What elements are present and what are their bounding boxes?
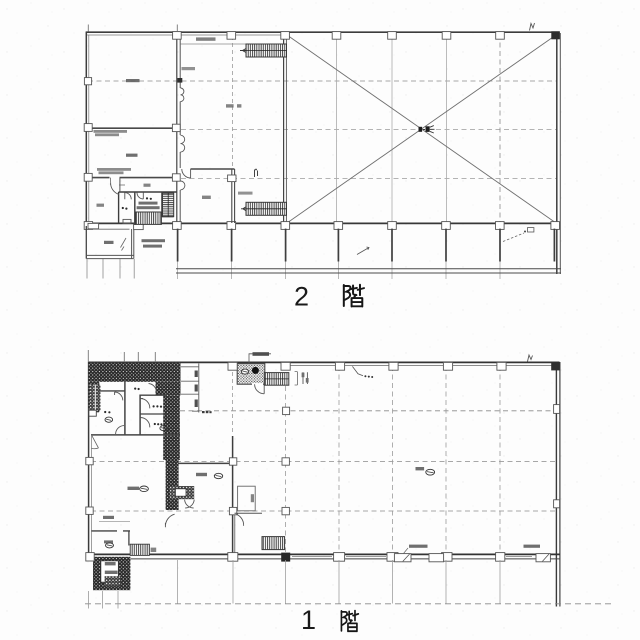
svg-text:2: 2 — [294, 282, 309, 312]
svg-text:1: 1 — [301, 605, 316, 635]
